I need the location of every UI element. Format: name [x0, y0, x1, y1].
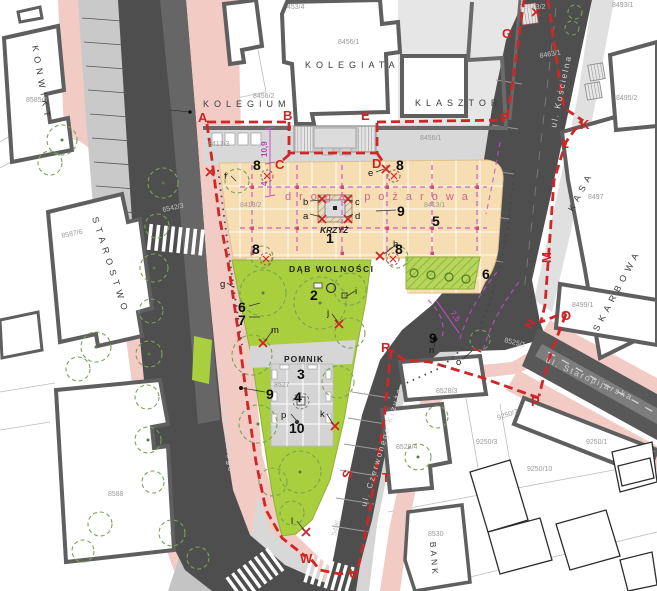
dim-10-9: 10,9	[260, 141, 269, 157]
parcel-9250-3: 9250/3	[476, 439, 498, 446]
boundary-E: E	[361, 108, 370, 123]
boundary-M: M	[539, 252, 554, 263]
label-kolegiata: KOLEGIATA	[305, 60, 400, 70]
boundary-W: W	[300, 551, 313, 566]
label-pomnik: POMNIK	[284, 354, 324, 364]
parcel-8588: 8588	[108, 491, 124, 498]
parcel-8413-3: 8413/3	[208, 141, 230, 148]
zone-2: 2	[310, 287, 318, 303]
parcel-8493-1: 8493/1	[612, 2, 634, 9]
green-hatched-strip	[406, 257, 480, 289]
mark-j: j	[326, 308, 329, 319]
boundary-B: B	[283, 108, 292, 123]
parcel-9250-10: 9250/10	[527, 466, 552, 473]
boundary-P: P	[531, 394, 540, 409]
boundary-C: C	[275, 157, 285, 172]
mark-c: c	[355, 197, 360, 208]
zone-8a: 8	[253, 157, 261, 173]
boundary-R: R	[381, 340, 391, 355]
parcel-8456-1b: 8456/1	[420, 135, 442, 142]
parcel-8413-2: 8413/2	[240, 202, 262, 209]
parcel-8528-3: 8528/3	[436, 388, 458, 395]
parcel-8527: 8527	[274, 382, 290, 389]
zone-9c: 9	[266, 386, 274, 402]
parcel-8463-2: 8463/2	[524, 4, 546, 11]
label-krzyz: KRZYŻ	[320, 225, 349, 235]
label-klasztor: KLASZTOR	[415, 98, 502, 108]
site-plan-map: KOLEGIATA KLASZTOR KOLEGIUM KONWIKT STAR…	[0, 0, 657, 591]
mark-b: b	[303, 197, 308, 208]
mark-n: n	[429, 345, 434, 356]
parcel-8499-1: 8499/1	[572, 302, 594, 309]
parcel-8585-4: 8585/4	[26, 97, 48, 104]
mark-d: d	[355, 211, 360, 222]
parcel-8456-2: 8456/2	[253, 93, 275, 100]
building-8588	[56, 380, 174, 562]
building-8495-2	[610, 42, 657, 130]
zone-8b: 8	[396, 157, 404, 173]
mark-e: e	[368, 168, 373, 179]
zone-10: 10	[289, 420, 305, 436]
boundary-O: O	[561, 308, 571, 323]
zone-6b: 6	[482, 266, 490, 282]
zone-1: 1	[326, 230, 334, 246]
parcel-8497: 8497	[588, 194, 604, 201]
boundary-T: T	[382, 470, 390, 485]
mark-l: l	[291, 516, 293, 527]
parcel-453-4: 453/4	[287, 4, 305, 11]
label-droga-pozarowa: droga pożarowa	[285, 191, 476, 203]
kolegiata-entrance-steps	[294, 126, 376, 155]
label-dab-wolnosci: DĄB WOLNOŚCI	[289, 263, 375, 274]
parcel-8456-1: 8456/1	[338, 39, 360, 46]
parcel-9250-1: 9250/1	[586, 439, 608, 446]
dim-4: 4	[260, 181, 269, 186]
zone-4: 4	[294, 389, 302, 405]
parcel-8528-4: 8528/4	[396, 444, 418, 451]
zone-9b: 9	[429, 330, 437, 346]
zone-3: 3	[297, 366, 305, 382]
parcel-8495-2: 8495/2	[616, 95, 638, 102]
mark-m: m	[271, 325, 279, 336]
parcel-8413-1: 8413/1	[424, 202, 446, 209]
mark-k: k	[320, 409, 325, 420]
boundary-A: A	[198, 110, 208, 125]
boundary-L: L	[561, 136, 569, 151]
label-kolegium: KOLEGIUM	[203, 99, 291, 109]
parcel-8530: 8530	[428, 531, 444, 538]
zone-7: 7	[238, 312, 246, 328]
boundary-U: U	[349, 566, 358, 581]
mark-a: a	[303, 211, 309, 222]
boundary-G: G	[502, 26, 512, 41]
zone-8c: 8	[252, 241, 260, 257]
zone-9a: 9	[397, 203, 405, 219]
mark-g: g	[220, 279, 225, 290]
mark-o: o	[456, 357, 461, 368]
zone-5: 5	[432, 213, 440, 229]
mark-i: i	[355, 286, 357, 297]
boundary-D: D	[372, 156, 381, 171]
mark-p: p	[281, 410, 286, 421]
boundary-K: K	[580, 117, 590, 132]
boundary-F: F	[500, 110, 508, 125]
mark-h: h	[393, 239, 398, 250]
building-left-edge	[0, 312, 42, 358]
mark-f: f	[224, 171, 227, 182]
